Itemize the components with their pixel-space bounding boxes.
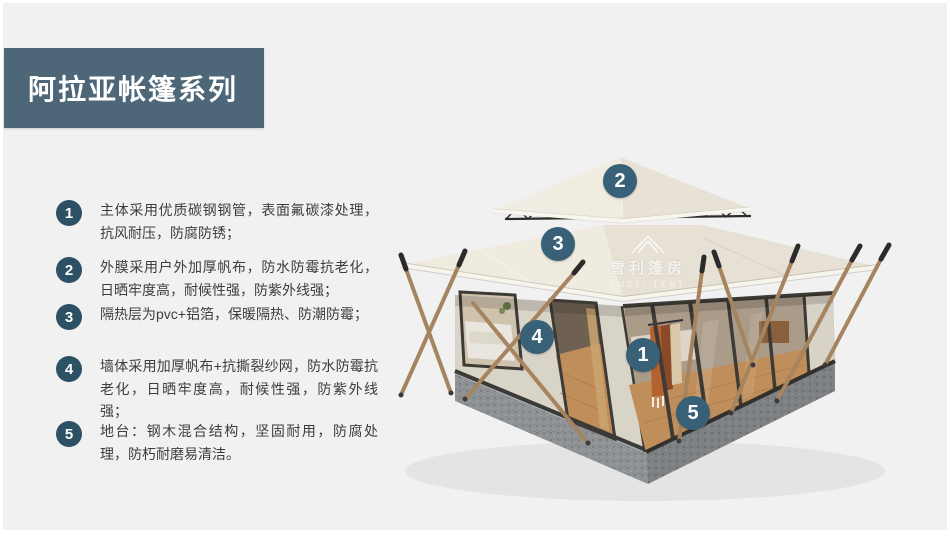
tent-marker-5: 5 xyxy=(676,396,710,430)
tent-marker-4: 4 xyxy=(520,320,554,354)
tent-marker-1: 1 xyxy=(626,338,660,372)
tent-main-roof xyxy=(401,225,878,299)
tent-illustration xyxy=(3,3,950,537)
tent-marker-3: 3 xyxy=(541,227,575,261)
tent-marker-2: 2 xyxy=(603,164,637,198)
slide-background: 阿拉亚帐篷系列 1 主体采用优质碳钢钢管，表面氟碳漆处理，抗风耐压，防腐防锈； … xyxy=(3,3,947,530)
